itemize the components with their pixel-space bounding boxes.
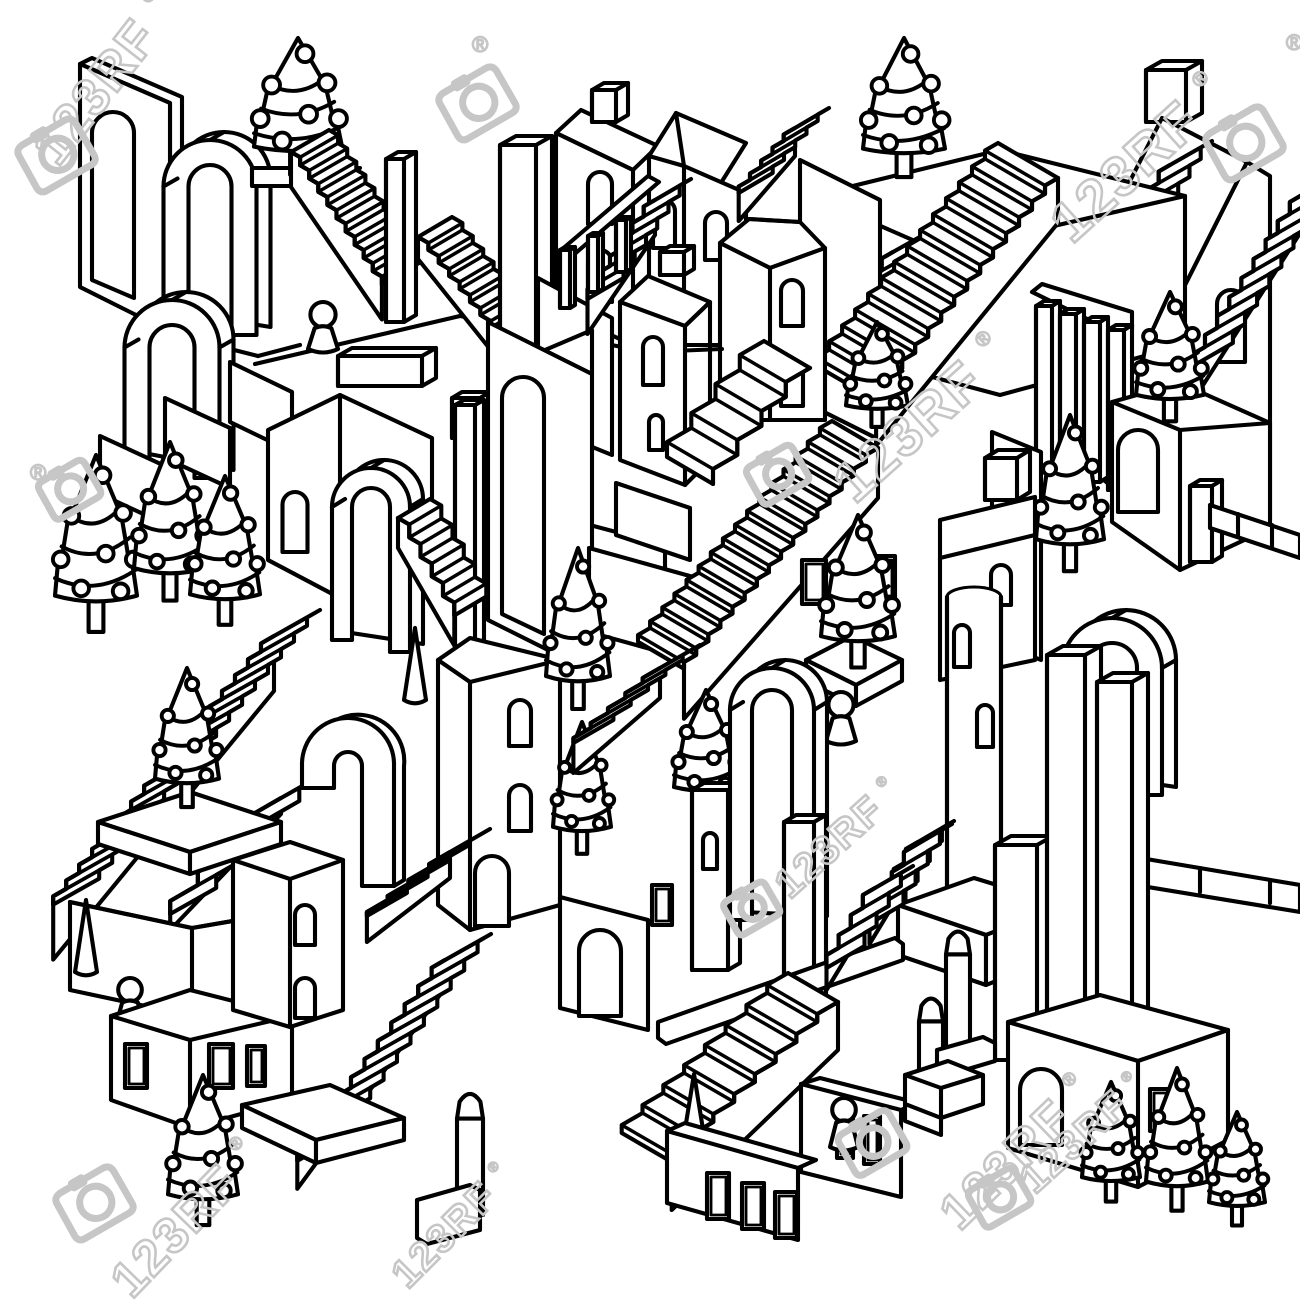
svg-text:®: ®: [1286, 30, 1300, 55]
svg-text:®: ®: [472, 32, 488, 57]
svg-text:®: ®: [30, 460, 46, 485]
